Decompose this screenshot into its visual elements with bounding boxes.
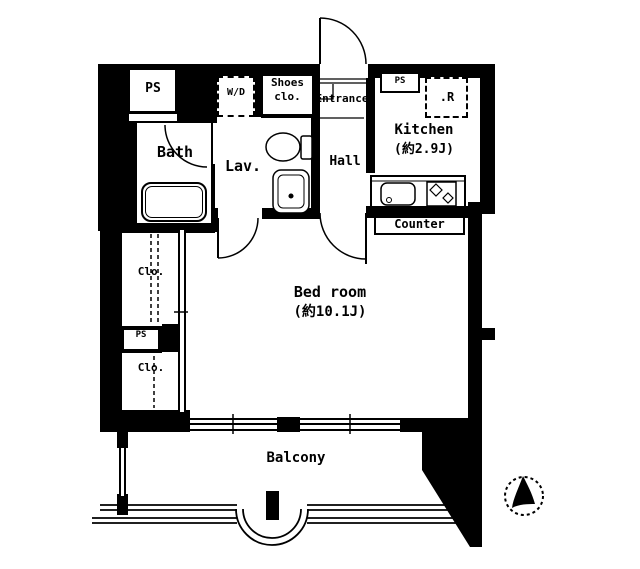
closet-upper-label: Clo. xyxy=(123,266,179,278)
shoes-closet-label-1: Shoes xyxy=(262,77,313,89)
balcony-label: Balcony xyxy=(240,451,352,466)
lavatory-label: Lav. xyxy=(216,159,270,175)
ps-top-label: PS xyxy=(129,82,177,96)
refrigerator-label: .R xyxy=(432,91,462,104)
closet-lower-label: Clo. xyxy=(123,362,179,374)
balcony-window xyxy=(190,414,400,434)
entrance-label: Entrance xyxy=(315,93,369,105)
lavatory-sink xyxy=(273,170,309,213)
bedroom-label: Bed room xyxy=(260,285,400,301)
lavatory-door xyxy=(218,218,258,258)
entrance-door xyxy=(320,18,366,64)
floor-plan: PS Bath W/D Shoes clo. Entrance PS .R Ki… xyxy=(0,0,640,569)
bedroom-size-label: (約10.1J) xyxy=(256,305,404,320)
hall-label: Hall xyxy=(322,155,368,169)
stove xyxy=(427,182,456,206)
balcony-center-post xyxy=(266,491,279,520)
closet-hanger-lines xyxy=(151,234,158,408)
ps-kitchen-label: PS xyxy=(381,77,419,86)
ps-middle-label: PS xyxy=(122,331,160,340)
kitchen-sink xyxy=(381,183,415,205)
washer-dryer-label: W/D xyxy=(217,88,255,99)
kitchen-size-label: (約2.9J) xyxy=(368,143,480,157)
toilet xyxy=(266,133,312,161)
compass-icon xyxy=(505,476,543,515)
shoes-closet-label-2: clo. xyxy=(262,91,313,103)
counter-label: Counter xyxy=(376,218,463,231)
hall-door xyxy=(320,213,366,264)
kitchen-label: Kitchen xyxy=(374,123,474,138)
corner-wall-triangle xyxy=(400,418,482,547)
bath-label: Bath xyxy=(139,145,211,161)
